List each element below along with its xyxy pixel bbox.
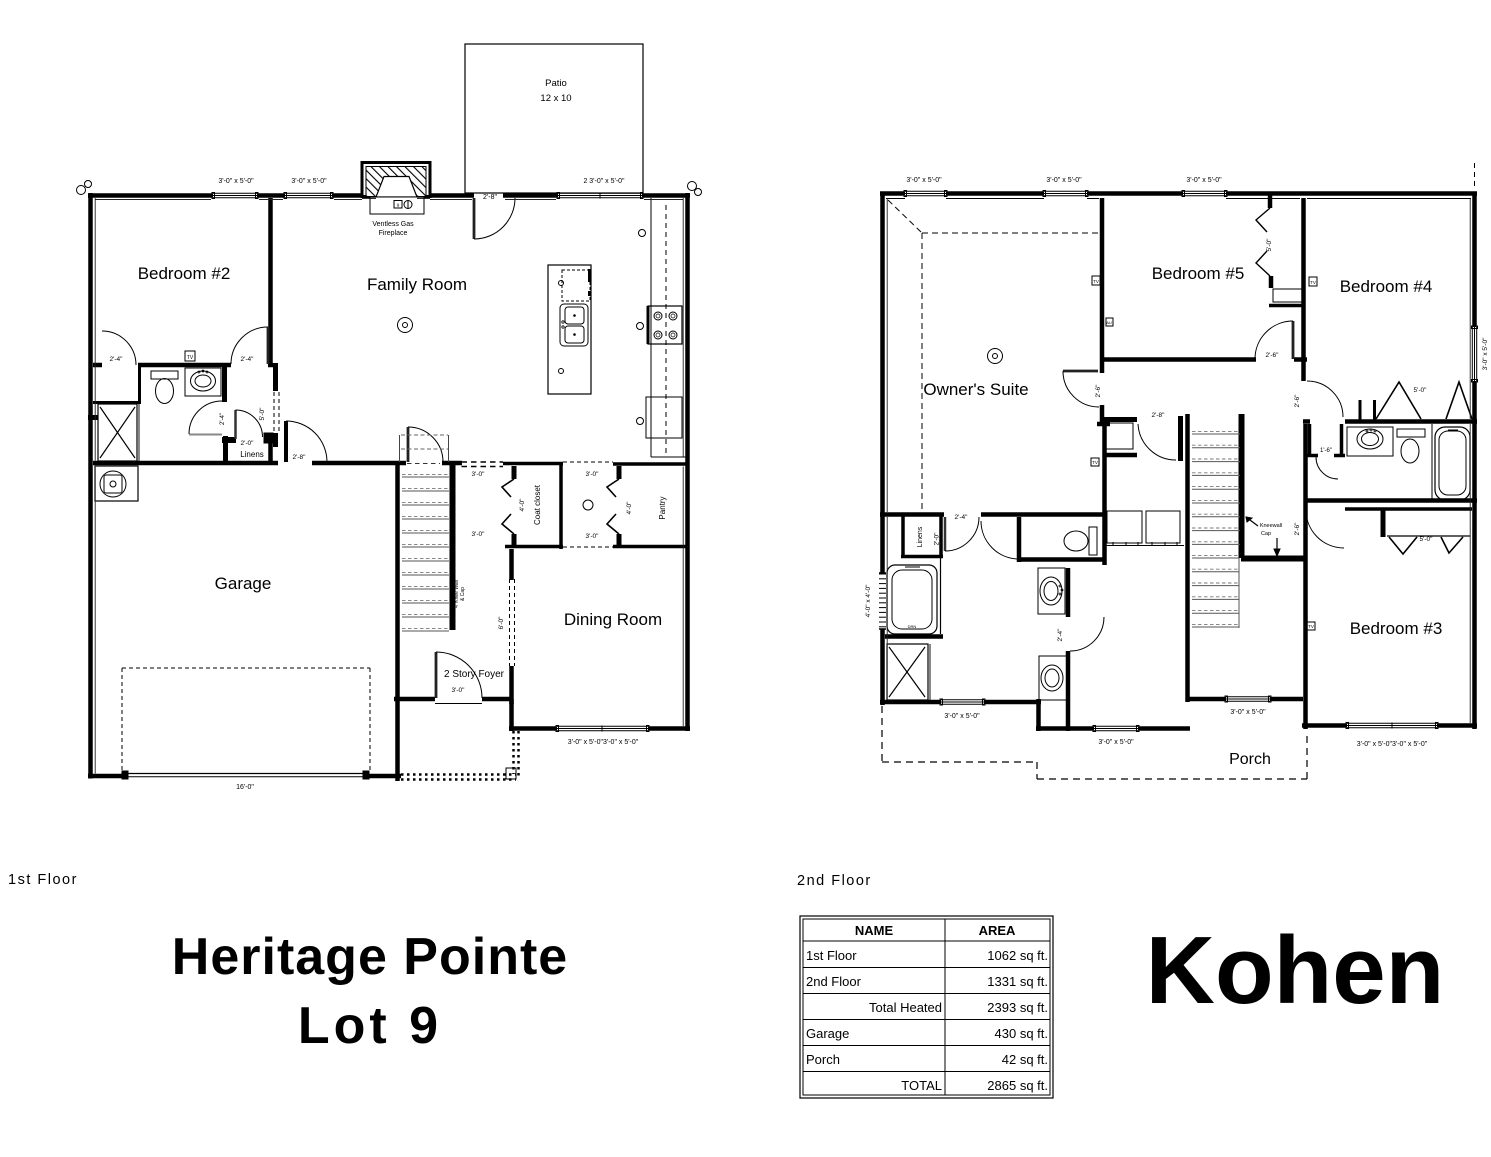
svg-text:2'-6": 2'-6" <box>1266 352 1280 359</box>
svg-text:Coat closet: Coat closet <box>533 484 542 525</box>
svg-text:Cap: Cap <box>1261 531 1271 537</box>
svg-text:TV: TV <box>1093 279 1099 284</box>
svg-text:12 x 10: 12 x 10 <box>540 93 571 104</box>
svg-text:3'-0" x 5'-0": 3'-0" x 5'-0" <box>1482 337 1489 370</box>
svg-text:42 sq ft.: 42 sq ft. <box>1002 1052 1048 1067</box>
svg-text:2nd Floor: 2nd Floor <box>806 974 862 989</box>
svg-text:Kneewall: Kneewall <box>1260 523 1282 529</box>
svg-text:AU: AU <box>1106 320 1112 325</box>
svg-text:3'-0" x 5'-0": 3'-0" x 5'-0" <box>218 178 254 185</box>
svg-text:Owner's Suite: Owner's Suite <box>923 380 1028 399</box>
svg-text:Fireplace: Fireplace <box>379 230 408 237</box>
svg-text:1062 sq ft.: 1062 sq ft. <box>987 948 1048 963</box>
svg-text:Bedroom #2: Bedroom #2 <box>138 264 231 283</box>
svg-text:1st Floor: 1st Floor <box>8 872 78 888</box>
svg-text:2'-8": 2'-8" <box>483 194 497 201</box>
svg-text:Linens: Linens <box>240 450 264 459</box>
svg-text:5'-0": 5'-0" <box>1266 238 1273 252</box>
svg-text:Total Heated: Total Heated <box>869 1000 942 1015</box>
svg-text:5'-0": 5'-0" <box>1420 536 1434 543</box>
svg-text:2393 sq ft.: 2393 sq ft. <box>987 1000 1048 1015</box>
svg-text:TV: TV <box>1310 280 1316 285</box>
svg-text:2'-6": 2'-6" <box>1095 384 1102 398</box>
svg-text:NAME: NAME <box>855 923 894 938</box>
svg-text:3'-0": 3'-0" <box>586 471 600 478</box>
svg-text:TV: TV <box>187 355 194 361</box>
svg-text:Lot 9: Lot 9 <box>298 997 442 1055</box>
svg-text:3'-0" x 5'-0": 3'-0" x 5'-0" <box>1186 177 1222 184</box>
svg-text:2'-4": 2'-4" <box>955 514 969 521</box>
svg-text:TV: TV <box>1308 624 1314 629</box>
svg-text:TV: TV <box>1092 460 1098 465</box>
svg-text:1'-6": 1'-6" <box>1320 448 1332 454</box>
svg-text:Patio: Patio <box>545 78 567 89</box>
svg-text:Bedroom #5: Bedroom #5 <box>1152 264 1245 283</box>
svg-text:2 3'-0" x 5'-0": 2 3'-0" x 5'-0" <box>583 178 625 185</box>
svg-text:2 Story Foyer: 2 Story Foyer <box>444 669 505 680</box>
svg-text:AREA: AREA <box>979 923 1016 938</box>
svg-text:4'-0" x 4'-0": 4'-0" x 4'-0" <box>865 584 872 617</box>
svg-text:430 sq ft.: 430 sq ft. <box>995 1026 1048 1041</box>
svg-text:& Cap: & Cap <box>460 587 466 601</box>
svg-text:4'-0": 4'-0" <box>626 501 633 515</box>
svg-text:Ventless Gas: Ventless Gas <box>372 221 414 228</box>
svg-text:2'-4": 2'-4" <box>241 356 255 363</box>
svg-text:Garage: Garage <box>215 574 272 593</box>
svg-text:2865 sq ft.: 2865 sq ft. <box>987 1078 1048 1093</box>
svg-text:Porch: Porch <box>806 1052 840 1067</box>
svg-text:6'-0": 6'-0" <box>498 616 505 630</box>
svg-text:3'-0" x 5'-0"3'-0" x 5'-0": 3'-0" x 5'-0"3'-0" x 5'-0" <box>1357 741 1428 748</box>
svg-text:Bedroom #3: Bedroom #3 <box>1350 619 1443 638</box>
svg-text:u: u <box>397 203 400 209</box>
svg-text:2'-4": 2'-4" <box>220 413 226 425</box>
svg-text:TOTAL: TOTAL <box>901 1078 942 1093</box>
svg-text:2'-4": 2'-4" <box>1057 628 1064 642</box>
svg-text:Bedroom #4: Bedroom #4 <box>1340 277 1433 296</box>
svg-text:5'-0": 5'-0" <box>1414 387 1428 394</box>
svg-text:5'-0": 5'-0" <box>259 407 266 421</box>
svg-text:3'-0" x 5'-0"3'-0" x 5'-0": 3'-0" x 5'-0"3'-0" x 5'-0" <box>568 739 639 746</box>
svg-text:Garage: Garage <box>806 1026 849 1041</box>
svg-text:2'-4": 2'-4" <box>110 356 124 363</box>
svg-text:3'-0": 3'-0" <box>472 531 486 538</box>
svg-text:1331 sq ft.: 1331 sq ft. <box>987 974 1048 989</box>
svg-text:3'-0": 3'-0" <box>452 687 466 694</box>
svg-text:4'-0": 4'-0" <box>519 498 526 512</box>
svg-text:3'-0" x 5'-0": 3'-0" x 5'-0" <box>1046 177 1082 184</box>
svg-text:3'-0" x 5'-0": 3'-0" x 5'-0" <box>291 178 327 185</box>
svg-text:2'-6": 2'-6" <box>1294 522 1301 536</box>
svg-text:3'-0" x 5'-0": 3'-0" x 5'-0" <box>944 713 980 720</box>
svg-text:Dining Room: Dining Room <box>564 610 662 629</box>
svg-text:Heritage Pointe: Heritage Pointe <box>172 928 568 986</box>
svg-text:Family Room: Family Room <box>367 275 467 294</box>
svg-text:3'-0": 3'-0" <box>586 533 600 540</box>
svg-text:3'-0": 3'-0" <box>472 471 486 478</box>
svg-text:2'-0": 2'-0" <box>241 440 255 447</box>
svg-text:3'-0" x 5'-0": 3'-0" x 5'-0" <box>906 177 942 184</box>
svg-text:2'-8": 2'-8" <box>293 454 307 461</box>
svg-text:Kohen: Kohen <box>1146 917 1445 1024</box>
svg-text:Linens: Linens <box>917 526 924 547</box>
svg-text:Porch: Porch <box>1229 751 1271 768</box>
svg-text:2'-6": 2'-6" <box>1294 394 1301 408</box>
svg-text:DRN: DRN <box>908 624 917 629</box>
svg-text:16'-0": 16'-0" <box>236 784 254 791</box>
svg-text:2'-8": 2'-8" <box>1152 412 1166 419</box>
svg-text:3'-0" x 5'-0": 3'-0" x 5'-0" <box>1230 709 1266 716</box>
svg-text:3'-0" x 5'-0": 3'-0" x 5'-0" <box>1098 739 1134 746</box>
svg-text:1st Floor: 1st Floor <box>806 948 857 963</box>
svg-text:Pantry: Pantry <box>658 496 667 519</box>
svg-text:2'-0": 2'-0" <box>934 532 941 546</box>
svg-text:2nd Floor: 2nd Floor <box>797 873 872 889</box>
